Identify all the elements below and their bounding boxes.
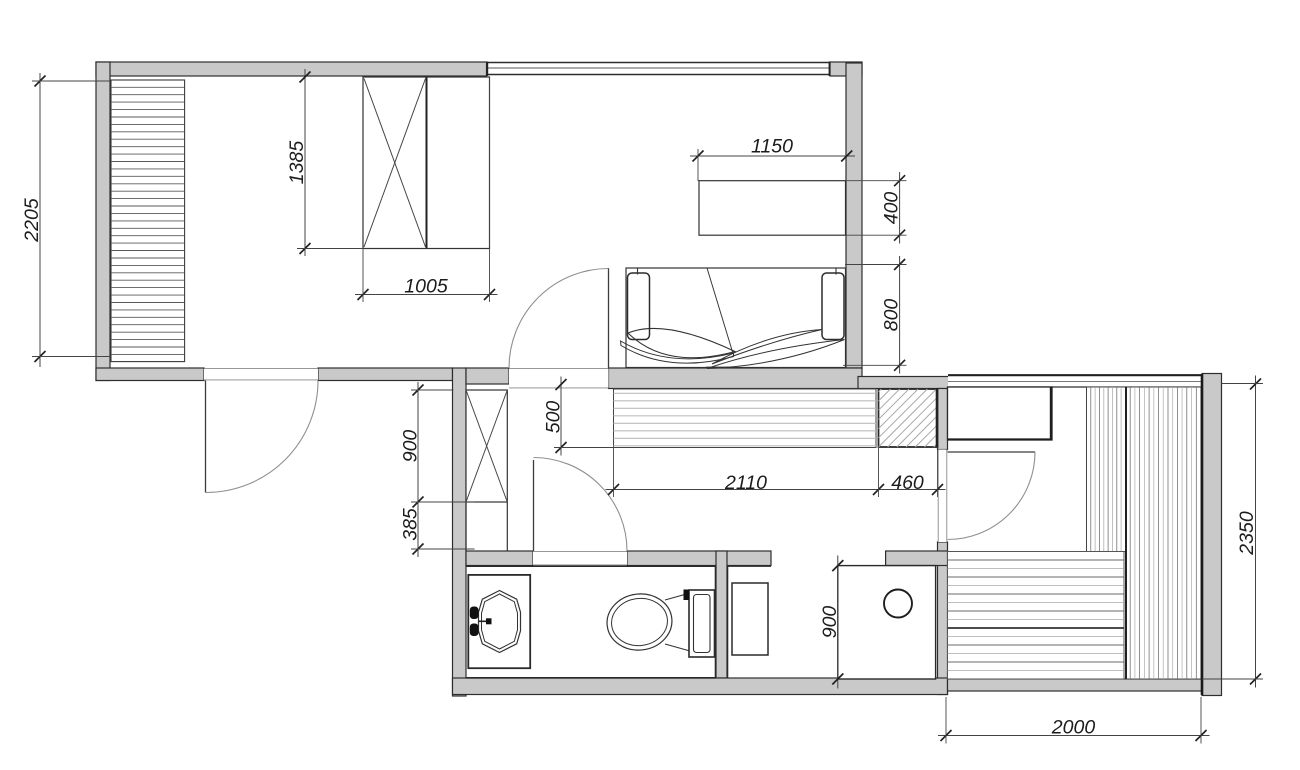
svg-text:1005: 1005 — [404, 276, 448, 298]
svg-text:2205: 2205 — [21, 198, 43, 243]
svg-text:800: 800 — [881, 299, 903, 332]
svg-text:2110: 2110 — [724, 472, 767, 494]
svg-text:2000: 2000 — [1051, 717, 1096, 739]
svg-text:500: 500 — [543, 401, 565, 434]
svg-text:400: 400 — [881, 192, 903, 225]
svg-text:900: 900 — [819, 606, 841, 639]
svg-text:1385: 1385 — [286, 141, 308, 185]
svg-text:1150: 1150 — [751, 136, 793, 158]
svg-text:460: 460 — [891, 472, 924, 494]
svg-text:2350: 2350 — [1236, 511, 1258, 556]
svg-text:900: 900 — [400, 430, 422, 463]
svg-text:385: 385 — [400, 508, 422, 541]
